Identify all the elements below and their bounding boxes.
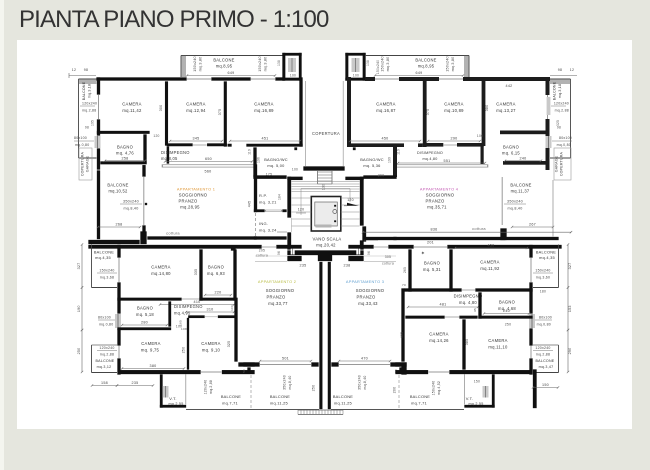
svg-text:mq.3,80: mq.3,80 [264, 57, 268, 72]
svg-text:mq.12,94: mq.12,94 [186, 108, 206, 113]
svg-text:250: 250 [77, 348, 81, 355]
svg-text:98: 98 [84, 68, 88, 72]
svg-text:mq.8,40: mq.8,40 [507, 207, 522, 211]
svg-text:235: 235 [132, 381, 139, 385]
svg-text:BALCONE: BALCONE [510, 183, 531, 188]
svg-text:CAMERA: CAMERA [186, 102, 205, 107]
svg-text:450: 450 [382, 137, 389, 141]
svg-text:mq.0,80: mq.0,80 [75, 143, 89, 147]
svg-text:238: 238 [344, 264, 351, 268]
svg-text:ING.: ING. [259, 221, 268, 226]
svg-text:649: 649 [416, 71, 423, 75]
svg-text:mq.2,88: mq.2,88 [100, 353, 114, 357]
svg-text:mq.2,88: mq.2,88 [82, 109, 96, 113]
svg-text:mq. 5,31: mq. 5,31 [423, 267, 441, 272]
svg-text:DISIMPEGNO: DISIMPEGNO [174, 304, 203, 309]
svg-text:481: 481 [440, 303, 447, 307]
svg-text:105: 105 [91, 120, 95, 126]
svg-text:BAGNO: BAGNO [208, 265, 224, 270]
svg-text:mq. 3,21: mq. 3,21 [259, 200, 277, 205]
svg-text:mq.16,89: mq.16,89 [254, 108, 274, 113]
svg-text:80x100: 80x100 [98, 316, 111, 320]
svg-text:mq.4,95: mq.4,95 [174, 311, 191, 316]
svg-text:mq.13,27: mq.13,27 [496, 108, 516, 113]
svg-text:PRANZO: PRANZO [357, 295, 376, 300]
svg-text:BAGNO: BAGNO [499, 300, 515, 305]
svg-text:98: 98 [557, 126, 561, 130]
svg-text:110: 110 [248, 149, 252, 155]
svg-text:100: 100 [292, 168, 298, 172]
svg-text:mq.8,40: mq.8,40 [123, 207, 138, 211]
svg-text:mq.7,71: mq.7,71 [411, 401, 427, 406]
svg-text:350x240: 350x240 [358, 375, 362, 390]
svg-text:380: 380 [150, 364, 157, 368]
svg-text:mq.3,18: mq.3,18 [88, 84, 92, 98]
svg-text:mq. 5,18: mq. 5,18 [136, 312, 154, 317]
svg-text:CAMERA: CAMERA [141, 341, 160, 346]
svg-text:BALCONE: BALCONE [107, 183, 128, 188]
svg-text:205: 205 [259, 249, 265, 253]
svg-text:95: 95 [473, 308, 477, 312]
svg-text:mq.3,60: mq.3,60 [536, 276, 550, 280]
svg-text:SOGGIORNO: SOGGIORNO [179, 193, 208, 198]
svg-text:220: 220 [215, 291, 222, 295]
svg-text:PRANZO: PRANZO [426, 199, 445, 204]
svg-text:560: 560 [205, 170, 212, 174]
svg-text:305: 305 [385, 255, 391, 259]
svg-text:APPARTAMENTO 3: APPARTAMENTO 3 [346, 279, 384, 284]
svg-text:BALCONE: BALCONE [333, 394, 353, 399]
svg-text:mq.8,05: mq.8,05 [161, 156, 178, 161]
svg-text:COPERTURA: COPERTURA [312, 131, 340, 136]
svg-text:mq.10,89: mq.10,89 [444, 108, 464, 113]
svg-text:V.T.: V.T. [466, 396, 474, 401]
svg-text:196: 196 [257, 157, 261, 163]
svg-text:mq.3,47: mq.3,47 [539, 365, 554, 369]
svg-text:98: 98 [85, 126, 89, 130]
svg-text:300: 300 [159, 105, 163, 111]
svg-text:mq.14,26: mq.14,26 [429, 338, 449, 343]
svg-text:mq.14,80: mq.14,80 [151, 271, 171, 276]
svg-text:mq.8,95: mq.8,95 [418, 64, 435, 69]
svg-text:cottura: cottura [472, 226, 486, 231]
svg-text:120x240: 120x240 [99, 346, 114, 350]
svg-text:mq. 4,76: mq. 4,76 [116, 151, 134, 156]
svg-text:150x240: 150x240 [432, 381, 436, 396]
svg-text:290: 290 [451, 137, 458, 141]
svg-text:190: 190 [388, 157, 392, 163]
svg-text:mq.7,71: mq.7,71 [222, 401, 238, 406]
svg-text:138: 138 [277, 60, 281, 66]
svg-text:120x240: 120x240 [535, 346, 550, 350]
svg-text:190: 190 [77, 305, 81, 312]
svg-text:mq.4,80: mq.4,80 [422, 157, 437, 161]
svg-text:110: 110 [397, 149, 401, 155]
svg-text:CAMERA: CAMERA [480, 260, 499, 265]
svg-text:235: 235 [300, 264, 307, 268]
svg-text:mq. 6,93: mq. 6,93 [207, 271, 225, 276]
svg-text:PRANZO: PRANZO [267, 295, 286, 300]
svg-text:CAMERA: CAMERA [444, 102, 463, 107]
svg-text:mq.11,25: mq.11,25 [334, 401, 352, 406]
svg-text:108: 108 [181, 327, 187, 331]
svg-text:150: 150 [542, 383, 549, 387]
svg-text:310: 310 [207, 308, 214, 312]
svg-text:380: 380 [485, 105, 489, 111]
svg-text:mq.2,55: mq.2,55 [468, 402, 483, 406]
svg-text:mq.11,92: mq.11,92 [480, 266, 500, 271]
svg-text:BAGNO/WC: BAGNO/WC [360, 157, 384, 162]
svg-text:327: 327 [77, 263, 81, 270]
svg-text:mq.0,80: mq.0,80 [557, 143, 571, 147]
svg-text:180: 180 [540, 290, 546, 294]
svg-text:mq.3,80: mq.3,80 [451, 57, 455, 72]
svg-text:451: 451 [262, 137, 269, 141]
svg-text:335: 335 [194, 269, 198, 275]
svg-text:80x100: 80x100 [539, 316, 552, 320]
svg-text:mq.3,80: mq.3,80 [386, 57, 390, 72]
svg-text:DISIMPEGNO: DISIMPEGNO [417, 151, 443, 155]
svg-text:CAMERA: CAMERA [488, 338, 507, 343]
svg-text:✶: ✶ [421, 251, 425, 256]
svg-text:mq.3,68: mq.3,68 [100, 276, 114, 280]
svg-text:mq.11,37: mq.11,37 [511, 189, 530, 194]
svg-text:240: 240 [520, 156, 527, 160]
svg-text:165: 165 [179, 320, 183, 326]
svg-text:267: 267 [529, 223, 536, 227]
svg-text:240: 240 [503, 309, 510, 313]
svg-text:mq.16,87: mq.16,87 [376, 108, 396, 113]
svg-text:120x240: 120x240 [554, 102, 569, 106]
svg-text:98: 98 [558, 68, 562, 72]
svg-text:mq.2,55: mq.2,55 [168, 402, 183, 406]
svg-text:BALCONE: BALCONE [270, 394, 290, 399]
svg-text:375: 375 [218, 109, 222, 115]
svg-text:SOGGIORNO: SOGGIORNO [356, 288, 385, 293]
svg-text:BAGNO: BAGNO [117, 145, 133, 150]
svg-text:BALCONE: BALCONE [553, 81, 557, 100]
svg-text:BAGNO: BAGNO [503, 145, 519, 150]
svg-text:COPERTURA: COPERTURA [560, 151, 564, 176]
svg-text:70: 70 [402, 283, 406, 287]
svg-text:mq.4,52: mq.4,52 [437, 381, 441, 395]
svg-text:12: 12 [72, 68, 76, 72]
svg-text:CAMERA: CAMERA [122, 102, 141, 107]
svg-text:APPARTAMENTO 4: APPARTAMENTO 4 [420, 187, 459, 192]
svg-text:BAGNO/WC: BAGNO/WC [264, 157, 288, 162]
svg-text:BALCONE: BALCONE [536, 250, 556, 255]
svg-text:150x240: 150x240 [193, 56, 197, 72]
svg-text:DISIMPEGNO: DISIMPEGNO [161, 150, 190, 155]
svg-text:120x240: 120x240 [204, 380, 208, 395]
svg-text:442: 442 [506, 84, 513, 88]
svg-text:GARAGE: GARAGE [86, 155, 90, 172]
svg-text:268: 268 [116, 223, 123, 227]
svg-text:mq.11,25: mq.11,25 [270, 401, 288, 406]
svg-text:465: 465 [400, 332, 404, 338]
svg-text:100: 100 [477, 134, 483, 138]
svg-text:mq.0,80: mq.0,80 [537, 323, 551, 327]
svg-text:CAMERA: CAMERA [429, 332, 448, 337]
svg-text:mq.3,12: mq.3,12 [97, 365, 112, 369]
svg-text:153: 153 [568, 305, 572, 312]
svg-text:BALCONE: BALCONE [415, 58, 436, 63]
svg-text:GARAGE: GARAGE [555, 155, 559, 172]
svg-text:mq.28,95: mq.28,95 [180, 205, 200, 210]
svg-text:100: 100 [230, 305, 234, 311]
svg-text:R.P.: R.P. [259, 193, 267, 198]
svg-text:150x240: 150x240 [446, 56, 450, 72]
svg-text:CAMERA: CAMERA [496, 102, 515, 107]
svg-text:mq.3,18: mq.3,18 [558, 84, 562, 98]
svg-text:80x100: 80x100 [74, 136, 87, 140]
svg-text:PIANTA PIANO PRIMO - 1:100: PIANTA PIANO PRIMO - 1:100 [19, 6, 329, 33]
svg-text:120: 120 [347, 198, 354, 202]
svg-text:96: 96 [277, 251, 281, 255]
svg-text:APPARTAMENTO 2: APPARTAMENTO 2 [258, 279, 296, 284]
svg-text:250: 250 [312, 385, 316, 391]
svg-text:mq. 6,15: mq. 6,15 [502, 151, 520, 156]
svg-text:V.T.: V.T. [169, 396, 177, 401]
svg-text:mq.11,10: mq.11,10 [488, 345, 508, 350]
svg-text:138: 138 [366, 60, 370, 66]
svg-text:649: 649 [228, 71, 235, 75]
svg-text:12: 12 [570, 68, 574, 72]
svg-text:BALCONE: BALCONE [536, 359, 555, 363]
svg-text:SOGGIORNO: SOGGIORNO [266, 288, 295, 293]
svg-text:290: 290 [568, 348, 572, 355]
svg-text:158: 158 [101, 381, 108, 385]
svg-text:470: 470 [361, 357, 368, 361]
svg-text:445: 445 [248, 201, 252, 207]
svg-text:CAMERA: CAMERA [201, 341, 220, 346]
svg-text:mq. 4,80: mq. 4,80 [459, 300, 477, 305]
svg-text:BAGNO: BAGNO [424, 261, 440, 266]
svg-text:BALCONE: BALCONE [94, 250, 114, 255]
svg-text:cottura: cottura [166, 231, 180, 236]
svg-text:VANO SCALA: VANO SCALA [313, 237, 342, 242]
svg-text:mq.35,71: mq.35,71 [427, 205, 447, 210]
svg-text:650: 650 [205, 157, 212, 161]
svg-text:mq.8,40: mq.8,40 [288, 375, 292, 389]
svg-text:150x240: 150x240 [376, 60, 380, 74]
svg-text:mq.2,88: mq.2,88 [536, 353, 550, 357]
svg-text:327: 327 [568, 263, 572, 270]
svg-text:mq. 5,36: mq. 5,36 [363, 163, 380, 168]
svg-text:BAGNO: BAGNO [137, 306, 153, 311]
svg-text:501: 501 [282, 357, 289, 361]
svg-text:96: 96 [367, 251, 371, 255]
svg-text:cottura: cottura [382, 262, 394, 266]
svg-text:350x240: 350x240 [283, 375, 287, 390]
svg-text:APPARTAMENTO 1: APPARTAMENTO 1 [177, 187, 215, 192]
svg-text:184: 184 [278, 194, 282, 200]
svg-text:120: 120 [298, 208, 305, 212]
svg-text:350x240: 350x240 [123, 200, 139, 204]
svg-text:BALCONE: BALCONE [221, 394, 241, 399]
svg-text:DISIMPEGNO: DISIMPEGNO [454, 294, 483, 299]
svg-text:551: 551 [444, 159, 451, 163]
svg-text:mq. 9,75: mq. 9,75 [141, 348, 160, 353]
svg-text:258: 258 [122, 156, 129, 160]
svg-text:mq.0,80: mq.0,80 [99, 323, 113, 327]
svg-text:120x240: 120x240 [82, 102, 97, 106]
svg-text:mq.4,35: mq.4,35 [539, 255, 555, 260]
svg-text:BALCONE: BALCONE [410, 394, 430, 399]
svg-text:200: 200 [378, 174, 385, 178]
svg-text:250: 250 [505, 323, 512, 327]
svg-text:375: 375 [426, 109, 430, 115]
svg-text:250: 250 [182, 347, 186, 353]
svg-text:mq.8,95: mq.8,95 [216, 64, 233, 69]
svg-text:450: 450 [488, 244, 495, 248]
svg-text:150x240: 150x240 [381, 56, 385, 72]
svg-text:PRANZO: PRANZO [179, 199, 198, 204]
svg-text:cottura: cottura [256, 254, 268, 258]
svg-text:175: 175 [266, 173, 273, 177]
svg-text:mq.2,88: mq.2,88 [555, 109, 569, 113]
svg-text:mq.20,42: mq.20,42 [316, 243, 336, 248]
svg-text:mq. 9,10: mq. 9,10 [202, 348, 221, 353]
svg-text:130: 130 [322, 184, 326, 190]
svg-text:mq. 3,24: mq. 3,24 [259, 228, 277, 233]
svg-text:BALCONE: BALCONE [96, 359, 115, 363]
svg-text:836: 836 [431, 228, 438, 232]
svg-text:325: 325 [227, 341, 231, 347]
svg-text:BALCONE: BALCONE [82, 81, 86, 100]
svg-text:mq.33,77: mq.33,77 [268, 301, 288, 306]
svg-text:mq.4,35: mq.4,35 [95, 255, 111, 260]
svg-text:150x240: 150x240 [535, 269, 550, 273]
svg-text:mq.3,80: mq.3,80 [199, 57, 203, 72]
svg-text:201: 201 [427, 241, 434, 245]
svg-text:mq. 5,00: mq. 5,00 [267, 163, 285, 168]
svg-text:120: 120 [153, 134, 159, 138]
svg-text:mq.33,43: mq.33,43 [358, 301, 378, 306]
svg-text:SOGGIORNO: SOGGIORNO [426, 193, 455, 198]
svg-text:CAMERA: CAMERA [254, 102, 273, 107]
svg-text:200: 200 [393, 387, 397, 393]
svg-text:mq.8,40: mq.8,40 [363, 375, 367, 389]
svg-text:50: 50 [242, 369, 246, 373]
svg-text:80x100: 80x100 [559, 136, 572, 140]
svg-text:CAMERA: CAMERA [151, 265, 170, 270]
svg-text:COPERTURA: COPERTURA [81, 151, 85, 176]
svg-text:150x240: 150x240 [99, 269, 114, 273]
svg-text:280: 280 [141, 321, 148, 325]
svg-text:100: 100 [290, 74, 296, 78]
svg-text:BALCONE: BALCONE [213, 58, 234, 63]
svg-text:150x240: 150x240 [258, 56, 262, 72]
svg-text:mq.2,88: mq.2,88 [209, 380, 213, 394]
svg-text:265: 265 [403, 267, 407, 273]
svg-text:385: 385 [465, 339, 469, 345]
svg-text:350x240: 350x240 [507, 200, 523, 204]
svg-text:CAMERA: CAMERA [376, 102, 395, 107]
svg-text:345: 345 [193, 137, 200, 141]
svg-text:mq.10,52: mq.10,52 [108, 189, 128, 194]
svg-text:150: 150 [474, 380, 480, 384]
svg-text:mq.11,42: mq.11,42 [122, 108, 142, 113]
svg-text:100: 100 [353, 74, 359, 78]
